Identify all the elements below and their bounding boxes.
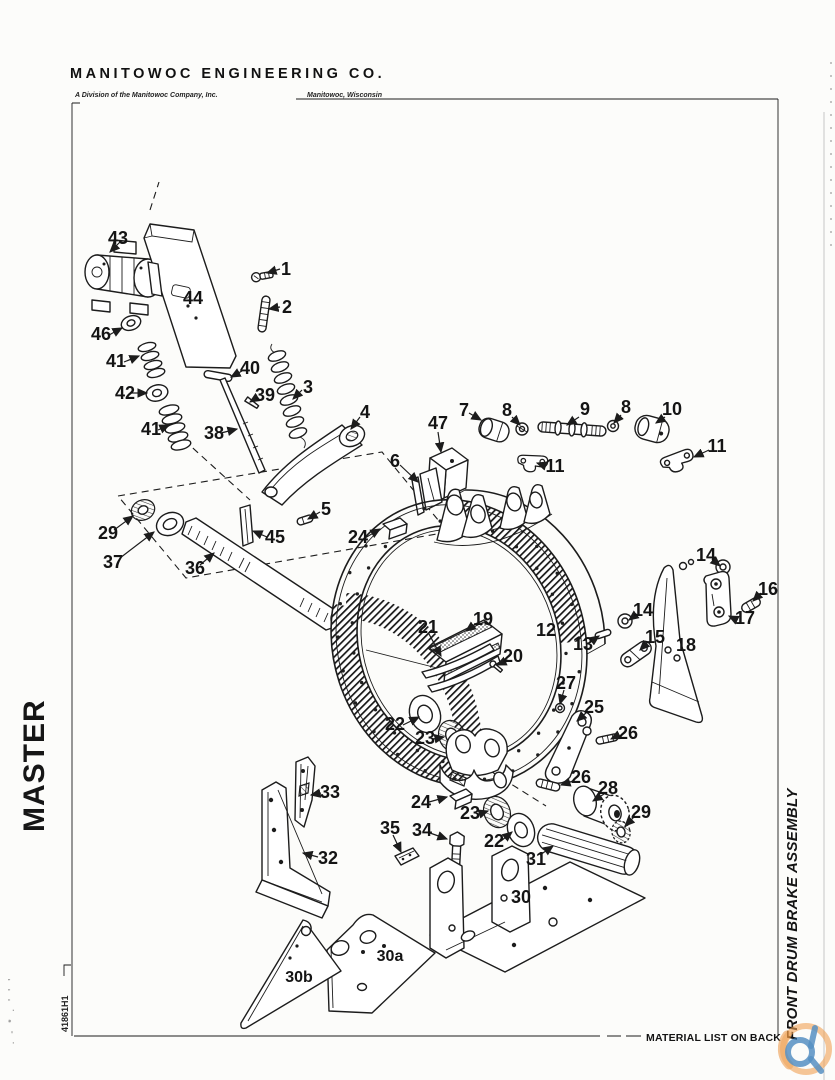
part-label-45: 45 [265, 527, 285, 547]
part-label-21: 21 [418, 617, 438, 637]
part-label-4: 4 [360, 402, 370, 422]
part-label-15: 15 [645, 627, 665, 647]
part-label-46: 46 [91, 324, 111, 344]
part-label-13: 13 [573, 634, 593, 654]
division-subtitle: A Division of the Manitowoc Company, Inc… [74, 92, 218, 99]
part-label-43: 43 [108, 228, 128, 248]
part-label-33: 33 [320, 782, 340, 802]
location-text: Manitowoc, Wisconsin [307, 92, 382, 99]
part-label-11a: 11 [707, 436, 726, 456]
part-label-28: 28 [598, 778, 618, 798]
part-label-23a: 23 [415, 728, 435, 748]
part-26-pin-upper [596, 733, 619, 744]
part-label-38: 38 [204, 423, 224, 443]
part-label-16: 16 [758, 579, 778, 599]
band-cam-assembly [440, 729, 513, 799]
part-label-30: 30 [511, 887, 531, 907]
part-label-26b: 26 [571, 767, 591, 787]
doc-number: 41861H1 [60, 995, 70, 1032]
part-label-2: 2 [282, 297, 292, 317]
part-label-41b: 41 [141, 419, 161, 439]
material-note: MATERIAL LIST ON BACK [646, 1032, 781, 1044]
part-7-cylinder [477, 416, 512, 444]
part-17-bracket [704, 572, 731, 627]
part-33-bracket [295, 757, 315, 827]
part-label-47: 47 [428, 413, 448, 433]
part-label-8a: 8 [502, 400, 512, 420]
part-42-washer [144, 382, 169, 403]
part-label-24b: 24 [411, 792, 431, 812]
part-label-27: 27 [556, 673, 576, 693]
part-35-key [395, 848, 419, 865]
part-label-14b: 14 [633, 600, 653, 620]
part-45-key [240, 505, 253, 546]
part-4-brake-lever [262, 421, 368, 505]
part-label-17: 17 [735, 608, 755, 628]
part-11-link-right [659, 448, 696, 475]
part-label-42: 42 [115, 383, 135, 403]
part-label-12: 12 [536, 620, 556, 640]
part-label-11b: 11 [545, 456, 564, 476]
part-8-nut-left [516, 423, 528, 435]
part-label-19: 19 [473, 609, 493, 629]
assembly-title: FRONT DRUM BRAKE ASSEMBLY [784, 787, 801, 1040]
exploded-view-drawing: 1 2 3 4 5 6 7 8 9 8 10 11 11 12 13 14 14… [85, 182, 778, 1028]
part-label-44: 44 [183, 288, 203, 308]
part-41-spring-upper [137, 341, 165, 379]
part-2-stud [258, 296, 271, 333]
part-29-bushing-left [128, 496, 158, 524]
part-label-23b: 23 [460, 803, 480, 823]
part-5-pin [296, 514, 313, 526]
part-label-30a: 30a [377, 948, 404, 965]
watermark-logo [782, 1026, 829, 1072]
part-label-31: 31 [526, 849, 546, 869]
part-label-37: 37 [103, 552, 123, 572]
part-label-6: 6 [390, 451, 400, 471]
part-label-32: 32 [318, 848, 338, 868]
part-label-29b: 29 [631, 802, 651, 822]
part-label-40: 40 [240, 358, 260, 378]
part-6-plate [412, 468, 442, 515]
part-37-bearing [153, 508, 188, 540]
part-9-threaded-shaft [538, 420, 607, 439]
part-label-14a: 14 [696, 545, 716, 565]
scanned-parts-sheet: MANITOWOC ENGINEERING CO. A Division of … [0, 0, 835, 1080]
part-label-36: 36 [185, 558, 205, 578]
part-label-41a: 41 [106, 351, 126, 371]
part-label-8b: 8 [621, 397, 631, 417]
part-8-nut-right [608, 421, 619, 432]
part-14-nut-lower [618, 614, 632, 628]
part-label-18: 18 [676, 635, 696, 655]
part-40-t-handle [204, 370, 233, 382]
part-27-washer [556, 704, 565, 713]
company-title: MANITOWOC ENGINEERING CO. [70, 66, 385, 82]
part-label-30b: 30b [285, 969, 313, 986]
part-label-22b: 22 [484, 831, 504, 851]
part-label-1: 1 [281, 259, 291, 279]
part-label-7: 7 [459, 400, 469, 420]
part-label-3: 3 [303, 377, 313, 397]
part-label-26a: 26 [618, 723, 638, 743]
part-label-39: 39 [255, 385, 275, 405]
part-label-35: 35 [380, 818, 400, 838]
part-label-25: 25 [584, 697, 604, 717]
master-stamp: MASTER [18, 699, 51, 832]
edge-marks: . - * . ' ' ' [7, 976, 16, 1044]
part-24-key-upper [383, 518, 407, 539]
part-label-10: 10 [662, 399, 682, 419]
part-label-29a: 29 [98, 523, 118, 543]
part-label-24a: 24 [348, 527, 368, 547]
part-label-5: 5 [321, 499, 331, 519]
part-label-34: 34 [412, 820, 432, 840]
part-11-link-left [516, 453, 548, 474]
part-label-9: 9 [580, 399, 590, 419]
part-46-washer [119, 313, 143, 333]
part-label-20: 20 [503, 646, 523, 666]
part-label-22a: 22 [385, 714, 405, 734]
